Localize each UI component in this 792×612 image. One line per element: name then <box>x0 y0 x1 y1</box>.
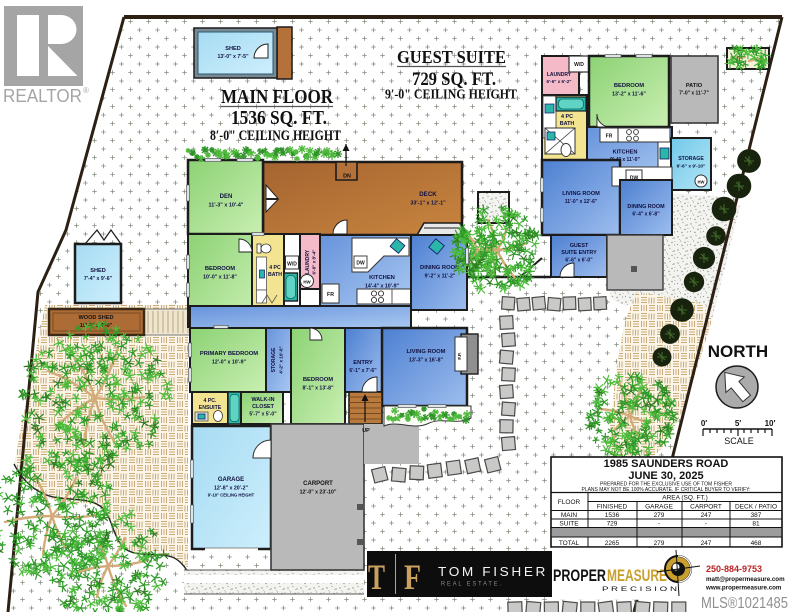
svg-text:-: - <box>705 521 707 528</box>
svg-text:279: 279 <box>654 540 665 547</box>
svg-text:UP: UP <box>362 428 370 434</box>
svg-text:12′-8" x 20′-2": 12′-8" x 20′-2" <box>214 486 248 492</box>
svg-text:GARAGE: GARAGE <box>218 477 244 483</box>
svg-text:ENSUITE: ENSUITE <box>199 405 222 411</box>
svg-text:KITCHEN: KITCHEN <box>613 150 638 156</box>
svg-text:BEDROOM: BEDROOM <box>205 266 235 272</box>
svg-text:BEDROOM: BEDROOM <box>614 83 644 89</box>
svg-text:PRIMARY BEDROOM: PRIMARY BEDROOM <box>200 351 258 357</box>
svg-text:HW: HW <box>303 280 311 285</box>
svg-text:7′-0" x 11′-7": 7′-0" x 11′-7" <box>679 91 709 97</box>
svg-text:1536: 1536 <box>605 512 620 519</box>
svg-text:DEN: DEN <box>220 194 233 200</box>
svg-text:ENTRY: ENTRY <box>353 360 373 366</box>
svg-text:279: 279 <box>654 512 665 519</box>
svg-text:10′-0" x 11′-8": 10′-0" x 11′-8" <box>203 275 237 281</box>
svg-text:33′-1" x 12′-1": 33′-1" x 12′-1" <box>410 201 446 207</box>
svg-text:81: 81 <box>752 521 760 528</box>
svg-text:SHED: SHED <box>225 46 241 52</box>
svg-text:MLS®1021485: MLS®1021485 <box>701 595 788 612</box>
svg-text:FINISHED: FINISHED <box>597 504 628 511</box>
svg-text:DW: DW <box>356 261 365 267</box>
svg-text:T: T <box>368 557 385 597</box>
svg-text:9′-2" x 11′-2": 9′-2" x 11′-2" <box>425 274 456 280</box>
svg-text:SCALE: SCALE <box>724 436 754 446</box>
svg-text:1985 SAUNDERS ROAD: 1985 SAUNDERS ROAD <box>604 458 729 470</box>
svg-text:LIVING ROOM: LIVING ROOM <box>407 349 446 355</box>
svg-text:LAUNDRY: LAUNDRY <box>547 72 572 78</box>
svg-text:CARPORT: CARPORT <box>303 481 333 487</box>
svg-text:9′-0" CEILING HEIGHT: 9′-0" CEILING HEIGHT <box>385 87 517 102</box>
svg-text:REAL ESTATE.: REAL ESTATE. <box>441 582 503 588</box>
svg-text:TOTAL: TOTAL <box>559 540 580 547</box>
svg-text:5′-7" x 5′-0": 5′-7" x 5′-0" <box>249 412 277 418</box>
svg-text:MEASURE: MEASURE <box>607 566 667 585</box>
svg-text:6′-6" x 6′-0": 6′-6" x 6′-0" <box>565 258 593 264</box>
svg-text:247: 247 <box>701 512 712 519</box>
svg-text:LIVING ROOM: LIVING ROOM <box>562 191 600 197</box>
svg-text:JUNE 30, 2025: JUNE 30, 2025 <box>628 470 703 482</box>
svg-text:W/D: W/D <box>287 262 297 268</box>
svg-text:P R E C I S I O N: P R E C I S I O N <box>602 586 677 593</box>
svg-text:4 PC.: 4 PC. <box>204 398 218 404</box>
svg-text:13′-2" x 11′-6": 13′-2" x 11′-6" <box>612 92 646 98</box>
svg-text:250-884-9753: 250-884-9753 <box>706 564 762 574</box>
svg-text:DN: DN <box>343 174 351 180</box>
svg-text:729: 729 <box>607 521 618 528</box>
svg-text:BATH: BATH <box>560 121 575 127</box>
svg-text:9′-10" CEILING HEIGHT: 9′-10" CEILING HEIGHT <box>208 493 255 498</box>
svg-text:NORTH: NORTH <box>708 342 768 361</box>
svg-text:KITCHEN: KITCHEN <box>369 275 395 281</box>
svg-text:www.propermeasure.com: www.propermeasure.com <box>705 585 782 592</box>
svg-text:MAIN FLOOR: MAIN FLOOR <box>221 86 333 108</box>
svg-text:13′-3" x 16′-8": 13′-3" x 16′-8" <box>409 358 443 364</box>
svg-text:WALK-IN: WALK-IN <box>251 397 274 403</box>
svg-text:DINING ROOM: DINING ROOM <box>420 265 460 271</box>
svg-text:6′-0" x 8′-4": 6′-0" x 8′-4" <box>312 250 317 275</box>
svg-text:11′-0" x 12′-6": 11′-0" x 12′-6" <box>565 199 598 205</box>
svg-text:6′-4" x 6′-8": 6′-4" x 6′-8" <box>632 212 660 218</box>
svg-text:STORAGE: STORAGE <box>678 156 704 162</box>
svg-text:6′-6" x 9′-10": 6′-6" x 9′-10" <box>677 164 706 170</box>
svg-text:468: 468 <box>751 540 762 547</box>
svg-text:12′-0" x 10′-9": 12′-0" x 10′-9" <box>212 360 246 366</box>
svg-text:SUITE ENTRY: SUITE ENTRY <box>561 250 597 256</box>
svg-text:WOOD SHED: WOOD SHED <box>78 315 113 321</box>
svg-text:PROPER: PROPER <box>553 566 606 585</box>
svg-text:8′-0" CEILING HEIGHT: 8′-0" CEILING HEIGHT <box>210 128 341 144</box>
svg-text:4′-2" x 10′-8": 4′-2" x 10′-8" <box>279 346 284 374</box>
svg-text:247: 247 <box>701 540 712 547</box>
svg-text:6′-6" x 6′-2": 6′-6" x 6′-2" <box>547 79 572 84</box>
svg-text:LAUNDRY: LAUNDRY <box>305 249 311 274</box>
svg-text:4 PC: 4 PC <box>269 265 281 271</box>
svg-text:5′: 5′ <box>735 419 741 428</box>
svg-text:matt@propermeasure.com: matt@propermeasure.com <box>706 576 785 583</box>
svg-text:®: ® <box>83 86 89 95</box>
svg-text:SUITE: SUITE <box>559 521 579 528</box>
svg-text:12′-0" x 23′-10": 12′-0" x 23′-10" <box>300 490 337 496</box>
svg-text:W/D: W/D <box>574 62 584 68</box>
svg-text:7′-4" x 9′-6": 7′-4" x 9′-6" <box>84 276 113 282</box>
svg-text:PATIO: PATIO <box>686 83 703 89</box>
svg-text:6′-1" x 7′-6": 6′-1" x 7′-6" <box>349 368 377 374</box>
svg-text:DINING ROOM: DINING ROOM <box>627 204 665 210</box>
svg-text:FR: FR <box>606 134 613 140</box>
svg-text:DECK: DECK <box>419 191 437 198</box>
svg-text:8′-1" x 13′-8": 8′-1" x 13′-8" <box>302 386 334 392</box>
svg-text:REALTOR: REALTOR <box>3 86 82 106</box>
svg-text:13′-0" x 7′-5": 13′-0" x 7′-5" <box>217 54 249 60</box>
svg-text:MAIN: MAIN <box>561 512 578 519</box>
svg-text:STORAGE: STORAGE <box>271 347 277 372</box>
svg-text:FLOOR: FLOOR <box>558 499 581 506</box>
svg-text:1536 SQ. FT.: 1536 SQ. FT. <box>231 107 327 129</box>
svg-text:11′-3" x 10′-4": 11′-3" x 10′-4" <box>209 203 244 209</box>
svg-text:GUEST: GUEST <box>570 243 589 249</box>
svg-text:4 PC: 4 PC <box>561 114 573 120</box>
svg-text:-: - <box>658 521 660 528</box>
svg-text:BEDROOM: BEDROOM <box>303 377 333 383</box>
svg-text:HW: HW <box>698 180 705 185</box>
svg-text:2265: 2265 <box>605 540 620 547</box>
svg-text:TOM FISHER: TOM FISHER <box>438 564 548 579</box>
svg-text:F: F <box>404 557 421 597</box>
svg-text:DECK / PATIO: DECK / PATIO <box>735 504 777 511</box>
svg-text:0′: 0′ <box>701 419 707 428</box>
svg-text:GARAGE: GARAGE <box>645 504 673 511</box>
svg-text:F.P.: F.P. <box>457 352 462 359</box>
svg-text:CLOSET: CLOSET <box>252 404 275 410</box>
svg-text:BATH: BATH <box>268 272 282 278</box>
svg-text:10′: 10′ <box>765 419 776 428</box>
svg-text:AREA (SQ. FT.): AREA (SQ. FT.) <box>662 495 708 502</box>
svg-text:SHED: SHED <box>90 268 106 274</box>
svg-text:GUEST SUITE: GUEST SUITE <box>397 47 506 67</box>
svg-text:CARPORT: CARPORT <box>690 504 722 511</box>
svg-text:FR: FR <box>327 292 334 298</box>
svg-text:387: 387 <box>751 512 762 519</box>
